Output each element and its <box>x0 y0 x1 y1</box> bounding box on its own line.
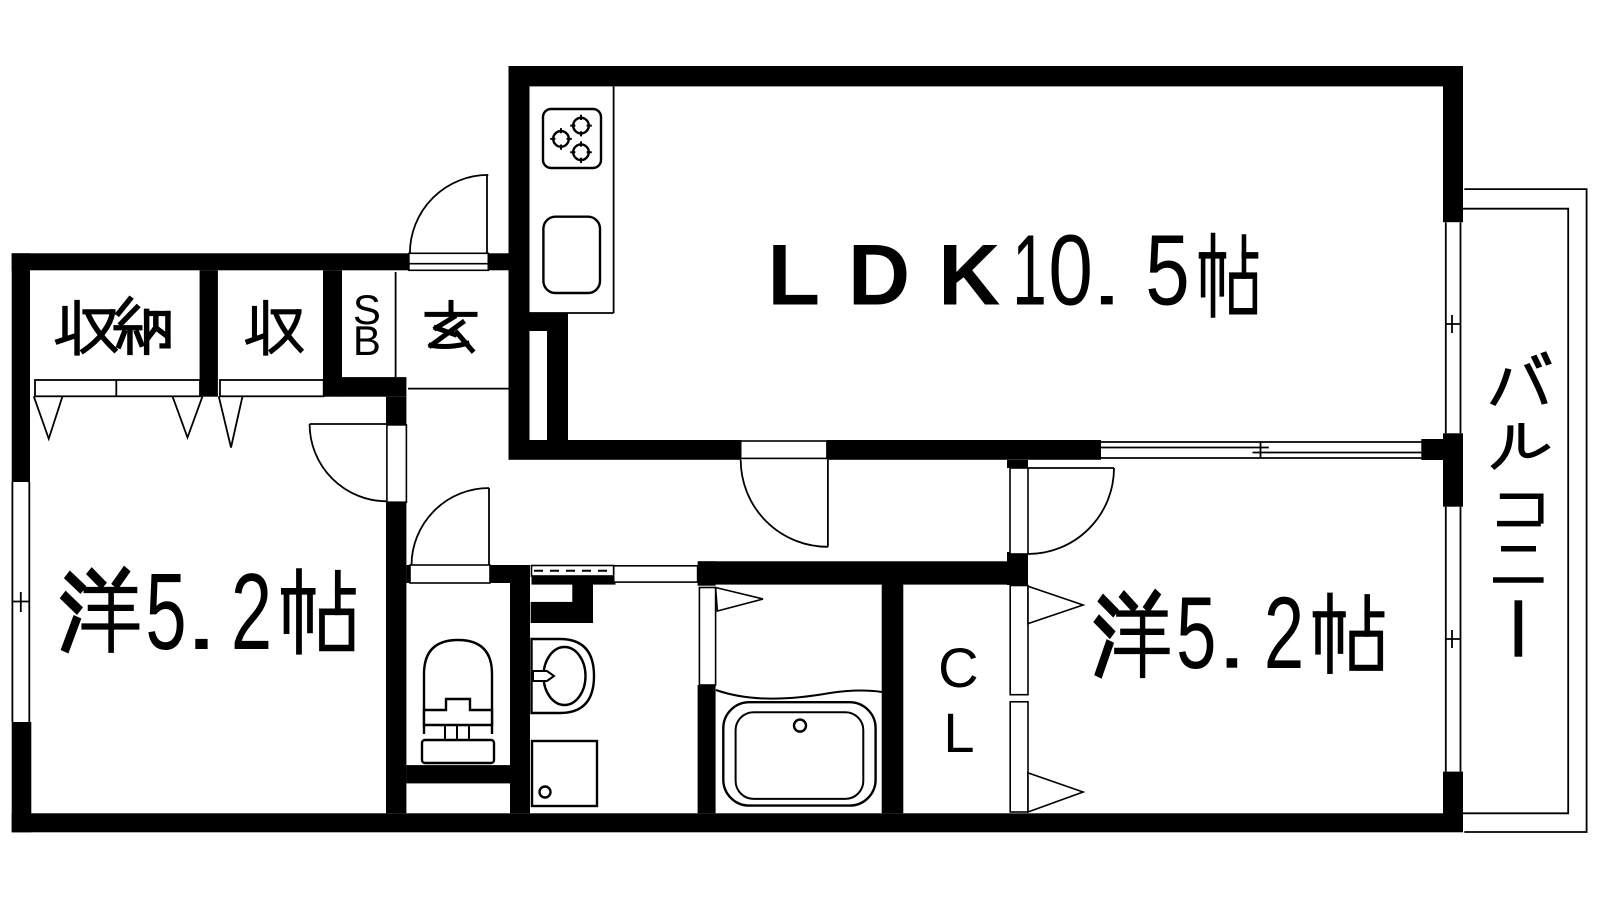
svg-text:L: L <box>768 227 821 323</box>
svg-text:2: 2 <box>231 551 272 673</box>
svg-text:1: 1 <box>1012 214 1046 326</box>
svg-text:0: 0 <box>1048 215 1092 327</box>
svg-text:C: C <box>938 636 978 699</box>
svg-text:D: D <box>848 227 910 323</box>
svg-text:K: K <box>938 227 1000 323</box>
svg-text:B: B <box>353 317 381 364</box>
svg-text:5: 5 <box>1176 576 1216 690</box>
svg-text:L: L <box>943 701 974 764</box>
svg-text:5: 5 <box>1145 215 1189 327</box>
svg-text:5: 5 <box>145 551 186 673</box>
svg-text:2: 2 <box>1264 576 1304 690</box>
